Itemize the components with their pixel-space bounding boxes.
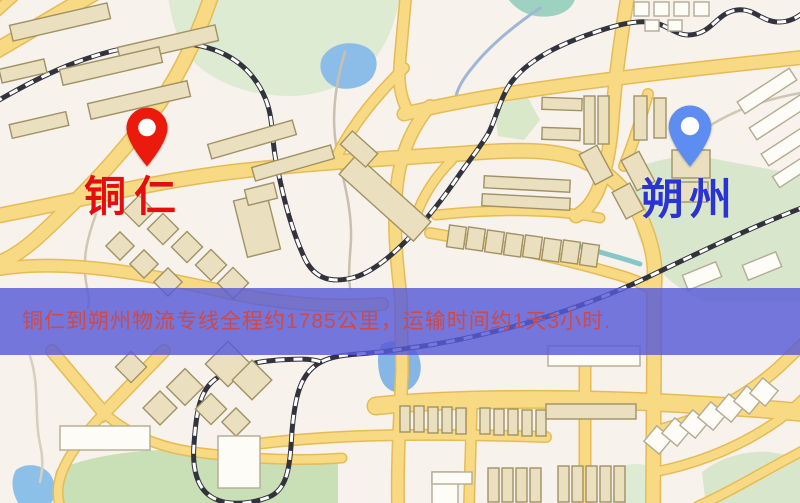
red-pin-icon[interactable] <box>125 106 169 168</box>
map-screenshot: 铜仁 朔州 铜仁到朔州物流专线全程约1785公里，运输时间约1天3小时. <box>0 0 800 503</box>
city-label-tongren: 铜仁 <box>84 176 184 218</box>
city-label-shuozhou: 朔州 <box>641 179 737 222</box>
map-canvas[interactable] <box>0 0 800 503</box>
route-info-text: 铜仁到朔州物流专线全程约1785公里，运输时间约1天3小时. <box>22 305 611 335</box>
blue-pin-icon[interactable] <box>667 104 713 168</box>
route-info-banner: 铜仁到朔州物流专线全程约1785公里，运输时间约1天3小时. <box>0 288 800 355</box>
